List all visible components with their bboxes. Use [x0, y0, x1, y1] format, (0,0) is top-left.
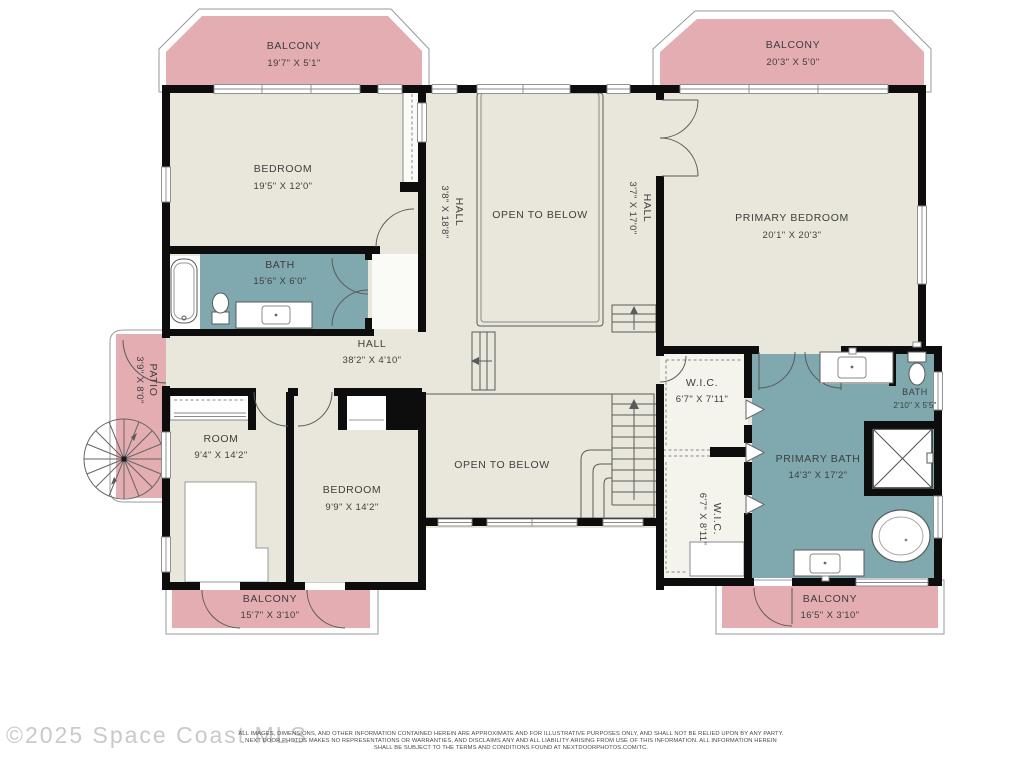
- hall-main-dims: 38'2" X 4'10": [343, 355, 402, 366]
- primary-bath-dims: 14'3" X 17'2": [789, 470, 848, 481]
- wic-1-dims: 6'7" X 7'11": [676, 394, 729, 405]
- bath-small-dims: 2'10" X 5'5": [893, 401, 936, 410]
- balcony-tr-label: BALCONY: [766, 39, 820, 51]
- room-notch: [185, 482, 268, 582]
- bath-tl-dims: 15'6" X 6'0": [253, 276, 306, 287]
- bath-tl-label: BATH: [265, 259, 295, 271]
- window: [378, 85, 402, 94]
- window: [438, 519, 472, 526]
- patio-dims: 3'9" X 8'0": [134, 356, 145, 404]
- open-below-bottom-label: OPEN TO BELOW: [454, 459, 550, 471]
- bathtub-oval: [872, 510, 930, 562]
- hall-left-label: HALL: [453, 198, 465, 227]
- window: [162, 167, 171, 202]
- balcony-tl-label: BALCONY: [267, 40, 321, 52]
- vanity-sink: [794, 550, 864, 581]
- window: [214, 85, 360, 94]
- balcony-tr-dims: 20'3" X 5'0": [766, 57, 819, 68]
- window: [856, 579, 928, 586]
- balc0ny-tl-dims: 19'7" X 5'1": [267, 58, 320, 69]
- open-below-top-label: OPEN TO BELOW: [492, 209, 588, 221]
- window: [680, 85, 888, 94]
- patio-label: PATIO: [147, 364, 159, 397]
- vanity-sink: [236, 302, 312, 328]
- hall-right-dims: 3'7" X 17'0": [627, 181, 638, 234]
- room-label: ROOM: [203, 433, 238, 445]
- primary-bath-label: PRIMARY BATH: [776, 453, 861, 465]
- toilet: [212, 293, 229, 324]
- balcony-bl-dims: 15'7" X 3'10": [241, 610, 300, 621]
- floor-plan-page: BALCONY 19'7" X 5'1" BALCONY 20'3" X 5'0…: [0, 0, 1024, 768]
- balcony-bl-label: BALCONY: [243, 593, 297, 605]
- hall-left-dims: 3'8" X 18'8": [439, 185, 450, 238]
- bathtub: [171, 259, 197, 323]
- disclaimer-line-2: NEXT DOOR PHOTOS MAKES NO REPRESENTATION…: [245, 738, 777, 744]
- wic-2-label: W.I.C.: [711, 503, 723, 535]
- window: [603, 519, 643, 526]
- balcony-br-label: BALCONY: [803, 593, 857, 605]
- window: [918, 206, 927, 284]
- vanity-sink: [820, 348, 893, 383]
- spiral-staircase: [84, 419, 164, 499]
- window: [162, 432, 171, 478]
- window: [487, 519, 577, 526]
- bedroom-b-dims: 9'9" X 14'2": [325, 502, 378, 513]
- primary-bedroom-dims: 20'1" X 20'3": [763, 230, 822, 241]
- shower: [873, 429, 933, 488]
- room-dims: 9'4" X 14'2": [194, 450, 247, 461]
- disclaimer-line-1: ALL IMAGES, DIMENSIONS, AND OTHER INFORM…: [238, 731, 783, 737]
- wic-1-label: W.I.C.: [686, 377, 718, 389]
- window: [432, 85, 457, 94]
- hall-main-label: HALL: [358, 338, 387, 350]
- wic-bench: [690, 542, 744, 576]
- window: [477, 85, 570, 94]
- window: [607, 85, 630, 94]
- window: [162, 537, 171, 572]
- wic-2-dims: 6'7" X 8'11": [697, 493, 708, 546]
- bath-small-label: BATH: [902, 387, 928, 397]
- window: [934, 496, 943, 538]
- footer: ©2025 Space Coast MLS ALL IMAGES, DIMENS…: [6, 722, 784, 751]
- floor-plan: BALCONY 19'7" X 5'1" BALCONY 20'3" X 5'0…: [0, 0, 1024, 768]
- bedroom-b-closet: [347, 396, 386, 430]
- hall-right-label: HALL: [641, 194, 653, 223]
- bedroom-b-label: BEDROOM: [323, 484, 381, 496]
- window: [418, 103, 427, 142]
- primary-bedroom-label: PRIMARY BEDROOM: [735, 212, 849, 224]
- bedroom-tl-label: BEDROOM: [254, 163, 312, 175]
- disclaimer-line-3: SHALL BE SUBJECT TO THE TERMS AND CONDIT…: [374, 745, 648, 751]
- balcony-br-dims: 16'5" X 3'10": [801, 610, 860, 621]
- bedroom-tl-dims: 19'5" X 12'0": [254, 181, 313, 192]
